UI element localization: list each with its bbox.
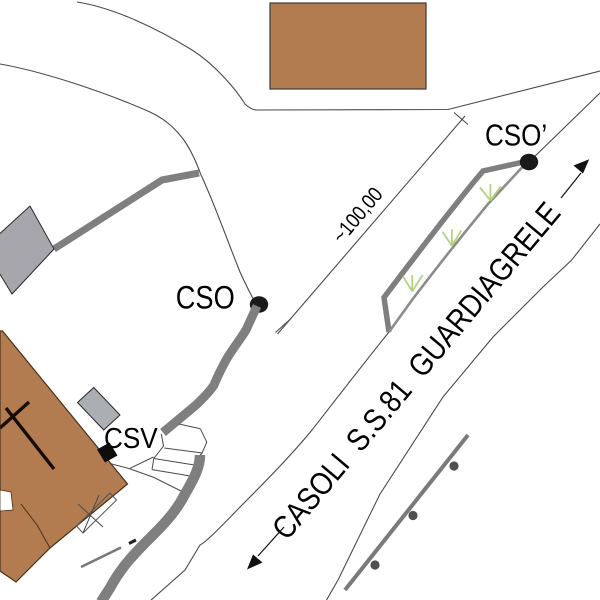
svg-text:CSV: CSV <box>104 422 158 455</box>
svg-text:CSO’: CSO’ <box>485 119 547 154</box>
svg-text:CSO: CSO <box>176 280 235 316</box>
